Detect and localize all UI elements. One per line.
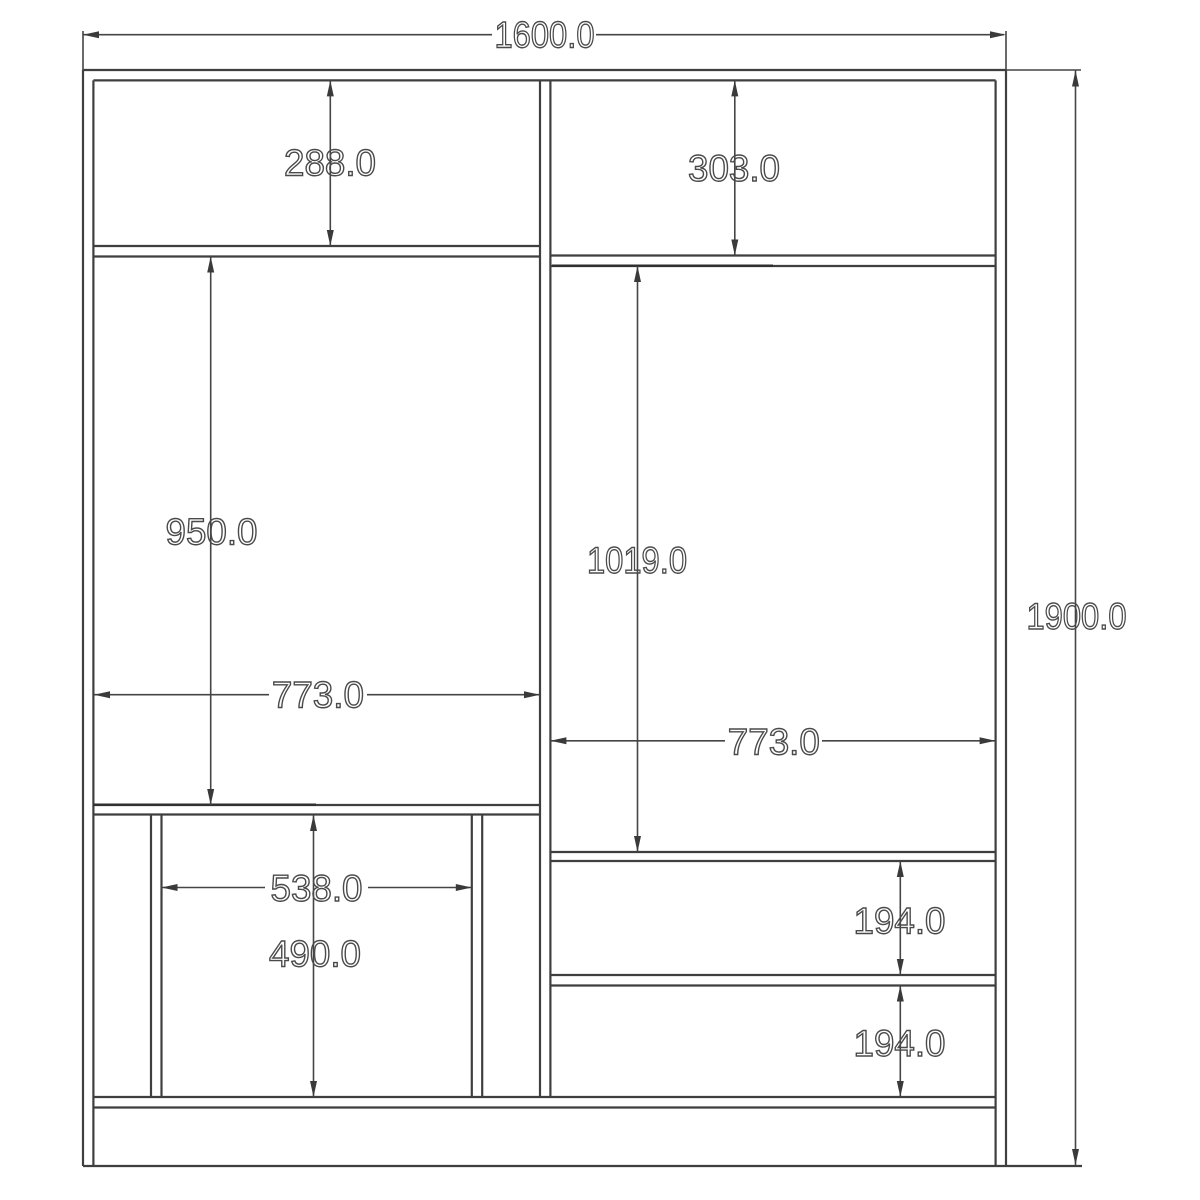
svg-text:1900.0: 1900.0 xyxy=(1027,596,1127,637)
svg-text:194.0: 194.0 xyxy=(854,1023,946,1064)
svg-text:773.0: 773.0 xyxy=(728,722,820,763)
svg-text:1019.0: 1019.0 xyxy=(587,540,687,581)
svg-text:303.0: 303.0 xyxy=(688,148,780,189)
svg-text:538.0: 538.0 xyxy=(271,868,363,909)
svg-text:773.0: 773.0 xyxy=(272,675,364,716)
svg-text:194.0: 194.0 xyxy=(854,901,946,942)
svg-text:1600.0: 1600.0 xyxy=(495,15,595,56)
svg-text:950.0: 950.0 xyxy=(166,512,258,553)
svg-text:288.0: 288.0 xyxy=(284,143,376,184)
svg-text:490.0: 490.0 xyxy=(269,934,361,975)
